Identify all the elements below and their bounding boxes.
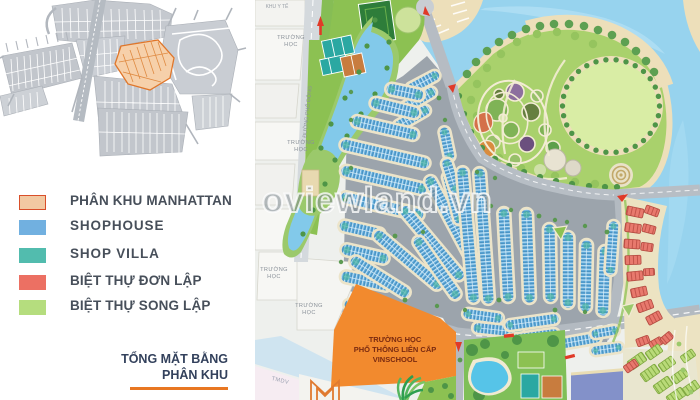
svg-text:HỌC: HỌC	[294, 147, 308, 153]
svg-text:PHỔ THÔNG LIÊN CẤP: PHỔ THÔNG LIÊN CẤP	[354, 344, 437, 354]
svg-text:TRƯỜNG HỌC: TRƯỜNG HỌC	[369, 335, 422, 344]
svg-text:HỌC: HỌC	[267, 274, 281, 280]
svg-text:TRƯỜNG: TRƯỜNG	[277, 34, 305, 41]
svg-text:TRƯỜNG: TRƯỜNG	[260, 266, 288, 273]
svg-text:HỌC: HỌC	[284, 42, 298, 48]
svg-text:TRƯỜNG: TRƯỜNG	[287, 139, 315, 146]
svg-text:KHU Y TẾ: KHU Y TẾ	[266, 3, 289, 10]
svg-text:VINSCHOOL: VINSCHOOL	[373, 355, 418, 364]
svg-text:TRƯỜNG: TRƯỜNG	[295, 302, 323, 309]
svg-text:HỌC: HỌC	[302, 310, 316, 316]
